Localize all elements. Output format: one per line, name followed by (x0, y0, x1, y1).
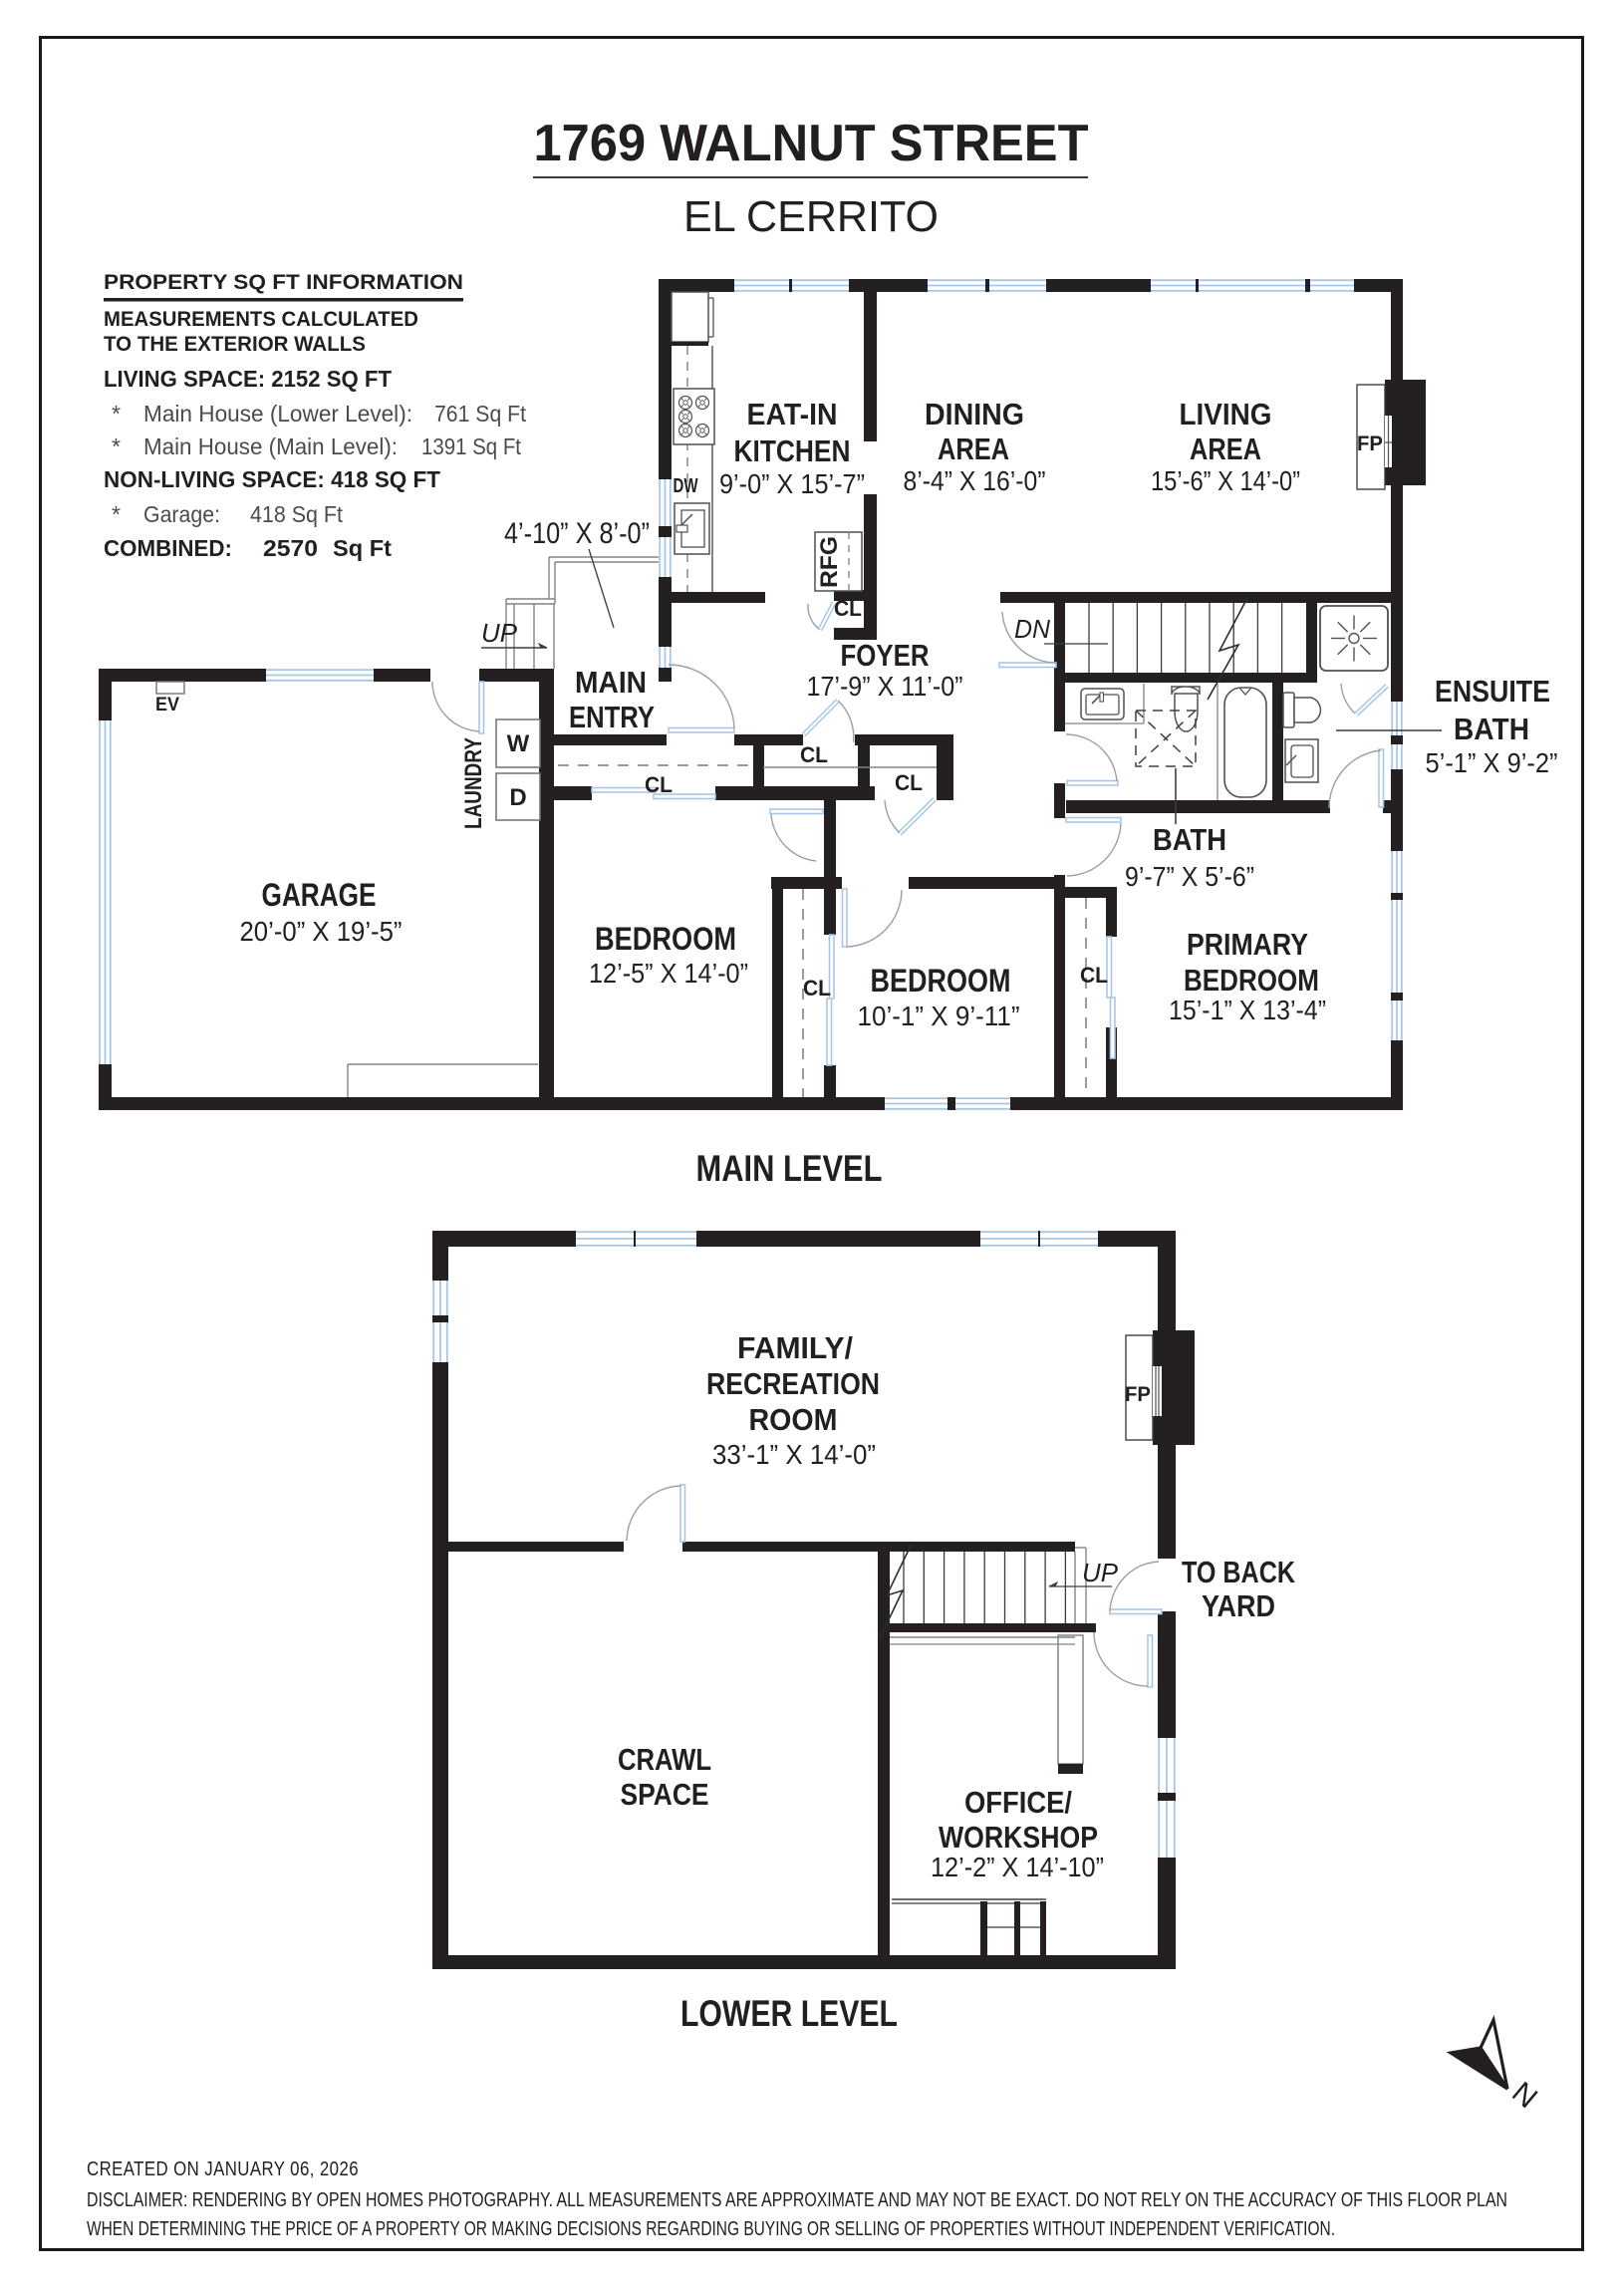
svg-text:RECREATION: RECREATION (706, 1366, 880, 1401)
svg-text:DN: DN (1014, 614, 1050, 644)
svg-text:LIVING SPACE: 2152 SQ FT: LIVING SPACE: 2152 SQ FT (104, 366, 392, 392)
svg-text:1391 Sq Ft: 1391 Sq Ft (421, 433, 522, 459)
svg-text:BEDROOM: BEDROOM (595, 921, 736, 957)
svg-text:COMBINED:: COMBINED: (104, 535, 232, 561)
svg-text:8’-4” X 16’-0”: 8’-4” X 16’-0” (904, 465, 1046, 496)
svg-text:CREATED ON JANUARY 06, 2026: CREATED ON JANUARY 06, 2026 (87, 2158, 359, 2180)
svg-text:CL: CL (1080, 963, 1108, 988)
svg-text:DISCLAIMER: RENDERING BY OPEN: DISCLAIMER: RENDERING BY OPEN HOMES PHOT… (87, 2189, 1507, 2211)
svg-text:AREA: AREA (938, 431, 1009, 466)
svg-text:UP: UP (481, 618, 518, 648)
svg-text:CL: CL (803, 976, 831, 1001)
svg-text:418 Sq Ft: 418 Sq Ft (250, 501, 344, 527)
svg-text:FOYER: FOYER (841, 638, 930, 673)
svg-text:BATH: BATH (1454, 712, 1529, 746)
svg-text:PRIMARY: PRIMARY (1187, 927, 1308, 962)
svg-text:20’-0” X 19’-5”: 20’-0” X 19’-5” (240, 916, 403, 947)
svg-text:MAIN: MAIN (575, 665, 647, 700)
svg-text:LAUNDRY: LAUNDRY (460, 737, 487, 829)
svg-text:DW: DW (674, 475, 698, 497)
svg-text:LOWER LEVEL: LOWER LEVEL (680, 1993, 898, 2034)
svg-text:KITCHEN: KITCHEN (734, 433, 851, 468)
svg-text:ROOM: ROOM (749, 1402, 838, 1437)
svg-text:SPACE: SPACE (621, 1777, 709, 1812)
svg-text:ENTRY: ENTRY (569, 700, 655, 734)
svg-text:FP: FP (1125, 1383, 1151, 1406)
svg-text:EAT-IN: EAT-IN (747, 397, 838, 431)
svg-text:W: W (507, 730, 530, 757)
svg-text:D: D (509, 784, 526, 811)
svg-text:TO THE EXTERIOR WALLS: TO THE EXTERIOR WALLS (104, 333, 366, 356)
svg-text:FP: FP (1357, 432, 1383, 455)
svg-text:OFFICE/: OFFICE/ (964, 1785, 1072, 1820)
svg-text:GARAGE: GARAGE (262, 877, 377, 913)
svg-text:12’-5” X 14’-0”: 12’-5” X 14’-0” (589, 958, 748, 989)
svg-text:PROPERTY SQ FT INFORMATION: PROPERTY SQ FT INFORMATION (104, 271, 463, 294)
svg-text:CL: CL (834, 596, 862, 621)
svg-text:WORKSHOP: WORKSHOP (939, 1820, 1098, 1855)
svg-text:12’-2” X 14’-10”: 12’-2” X 14’-10” (931, 1852, 1104, 1882)
svg-text:RFG: RFG (816, 536, 843, 588)
svg-text:BATH: BATH (1153, 822, 1226, 857)
svg-text:BEDROOM: BEDROOM (871, 963, 1011, 999)
svg-text:CL: CL (895, 770, 923, 795)
svg-text:YARD: YARD (1202, 1588, 1275, 1623)
svg-text:EV: EV (155, 695, 179, 716)
svg-text:BEDROOM: BEDROOM (1184, 963, 1319, 998)
svg-text:WHEN DETERMINING THE PRICE OF: WHEN DETERMINING THE PRICE OF A PROPERTY… (87, 2218, 1335, 2240)
svg-text:FAMILY/: FAMILY/ (737, 1330, 853, 1365)
svg-text:17’-9” X 11’-0”: 17’-9” X 11’-0” (807, 671, 963, 702)
svg-text:TO BACK: TO BACK (1182, 1555, 1295, 1589)
svg-text:4’-10” X 8’-0”: 4’-10” X 8’-0” (504, 517, 650, 550)
svg-text:Main House (Main Level):: Main House (Main Level): (143, 433, 398, 459)
svg-text:Garage:: Garage: (143, 501, 220, 527)
svg-text:761 Sq Ft: 761 Sq Ft (434, 401, 527, 427)
svg-text:UP: UP (1082, 1558, 1119, 1587)
svg-text:Sq Ft: Sq Ft (333, 535, 392, 561)
svg-text:CL: CL (800, 742, 828, 767)
svg-text:*: * (112, 501, 121, 527)
svg-text:CL: CL (645, 772, 673, 797)
svg-text:*: * (112, 433, 121, 459)
svg-text:10’-1” X 9’-11”: 10’-1” X 9’-11” (858, 1001, 1020, 1031)
svg-text:DINING: DINING (925, 397, 1024, 431)
svg-text:5’-1” X 9’-2”: 5’-1” X 9’-2” (1426, 747, 1558, 778)
svg-text:LIVING: LIVING (1180, 397, 1272, 431)
svg-text:AREA: AREA (1190, 431, 1261, 466)
svg-text:EL CERRITO: EL CERRITO (683, 192, 939, 241)
svg-text:MEASUREMENTS CALCULATED: MEASUREMENTS CALCULATED (104, 308, 418, 331)
svg-text:MAIN LEVEL: MAIN LEVEL (696, 1148, 883, 1189)
svg-text:ENSUITE: ENSUITE (1435, 674, 1550, 709)
svg-text:9’-7” X 5’-6”: 9’-7” X 5’-6” (1125, 861, 1254, 892)
svg-text:33’-1” X 14’-0”: 33’-1” X 14’-0” (712, 1439, 876, 1470)
svg-text:NON-LIVING SPACE: 418 SQ FT: NON-LIVING SPACE: 418 SQ FT (104, 466, 440, 492)
svg-text:15’-6” X 14’-0”: 15’-6” X 14’-0” (1151, 465, 1300, 496)
svg-text:CRAWL: CRAWL (618, 1742, 711, 1777)
svg-text:*: * (112, 401, 121, 427)
svg-text:9’-0” X 15’-7”: 9’-0” X 15’-7” (719, 468, 865, 499)
svg-text:Main House (Lower Level):: Main House (Lower Level): (143, 401, 412, 427)
svg-text:2570: 2570 (263, 535, 318, 561)
svg-text:15’-1” X 13’-4”: 15’-1” X 13’-4” (1169, 995, 1326, 1025)
svg-text:1769 WALNUT STREET: 1769 WALNUT STREET (534, 115, 1089, 172)
